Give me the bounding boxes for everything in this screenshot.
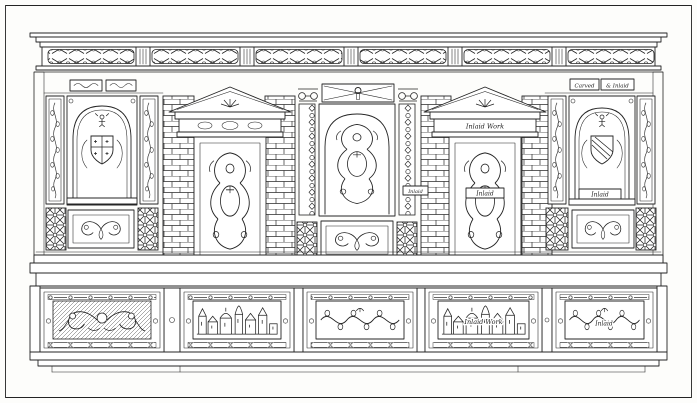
drawer-pier [294, 288, 303, 352]
fretwork-panel [297, 222, 317, 258]
cornice [30, 33, 667, 72]
inlaid-work-frieze-label: Inlaid Work [465, 123, 504, 131]
guilloche-panel [464, 50, 550, 64]
left-bay-lower-row [46, 208, 158, 250]
base-plinth [30, 352, 667, 372]
drawer-1 [40, 288, 164, 352]
guilloche-panel [568, 50, 654, 64]
drawer-band: Inlaid Work Inlaid [30, 286, 667, 352]
drawer-pier [164, 288, 180, 352]
left-bay [44, 80, 163, 250]
vine-pilaster [637, 96, 655, 204]
drawer-2 [180, 288, 294, 352]
cornice-frieze [48, 47, 654, 66]
pier-inlaid-label: Inlaid [407, 189, 423, 195]
drawer-5: Inlaid [552, 288, 657, 352]
inlaid-door-label: Inlaid [475, 191, 494, 198]
door-frame [449, 137, 521, 265]
guilloche-panel [360, 50, 446, 64]
heraldic-arch-niche: Inlaid [569, 96, 635, 205]
fretwork-panel [546, 208, 568, 250]
chain-pilaster [399, 104, 415, 215]
drawer-3 [303, 288, 417, 352]
right-plaques: Carved & Inlaid [570, 79, 634, 90]
left-plaques [70, 80, 136, 91]
center-arch-panel [319, 104, 395, 216]
fretwork-panel [397, 222, 417, 258]
drawer-inlaid-label: Inlaid [594, 321, 613, 328]
right-bay-lower-row [546, 208, 656, 250]
chain-pilaster [299, 104, 315, 215]
inlaid-arch-label: Inlaid [590, 192, 609, 199]
center-lower-row [297, 221, 417, 259]
door-frame [194, 137, 266, 265]
guilloche-panel [256, 50, 342, 64]
ionic-capital-icon [298, 89, 318, 101]
sideboard-engraving: Inlaid Work Inlaid Inlaid Carved & Inlai… [0, 0, 697, 403]
right-door: Inlaid Work Inlaid Inlaid [403, 87, 552, 265]
door-frieze [179, 119, 281, 132]
center-bay [297, 84, 418, 259]
and-inlaid-plaque-label: & Inlaid [606, 84, 629, 90]
vine-pilaster [140, 96, 158, 204]
drawer-inlaid-work-label: Inlaid Work [463, 318, 502, 326]
guilloche-panel [48, 50, 134, 64]
mid-moldings [30, 252, 667, 286]
drawer-pier [542, 288, 552, 352]
fretwork-panel [46, 208, 66, 250]
fretwork-panel [138, 208, 158, 250]
left-door [163, 87, 295, 265]
drawer-pier [417, 288, 425, 352]
left-end-stile [34, 72, 44, 265]
engraving-plate: Inlaid Work Inlaid Inlaid Carved & Inlai… [0, 0, 697, 403]
right-bay: Carved & Inlaid Inlaid [545, 79, 656, 250]
vine-pilaster [46, 96, 64, 204]
drawer-4: Inlaid Work [425, 288, 542, 352]
vine-pilaster [548, 96, 566, 204]
left-arch-niche [67, 96, 137, 205]
carved-plaque-label: Carved [575, 84, 595, 90]
ionic-capital-icon [398, 89, 418, 101]
fretwork-panel [636, 208, 656, 250]
guilloche-panel [152, 50, 238, 64]
